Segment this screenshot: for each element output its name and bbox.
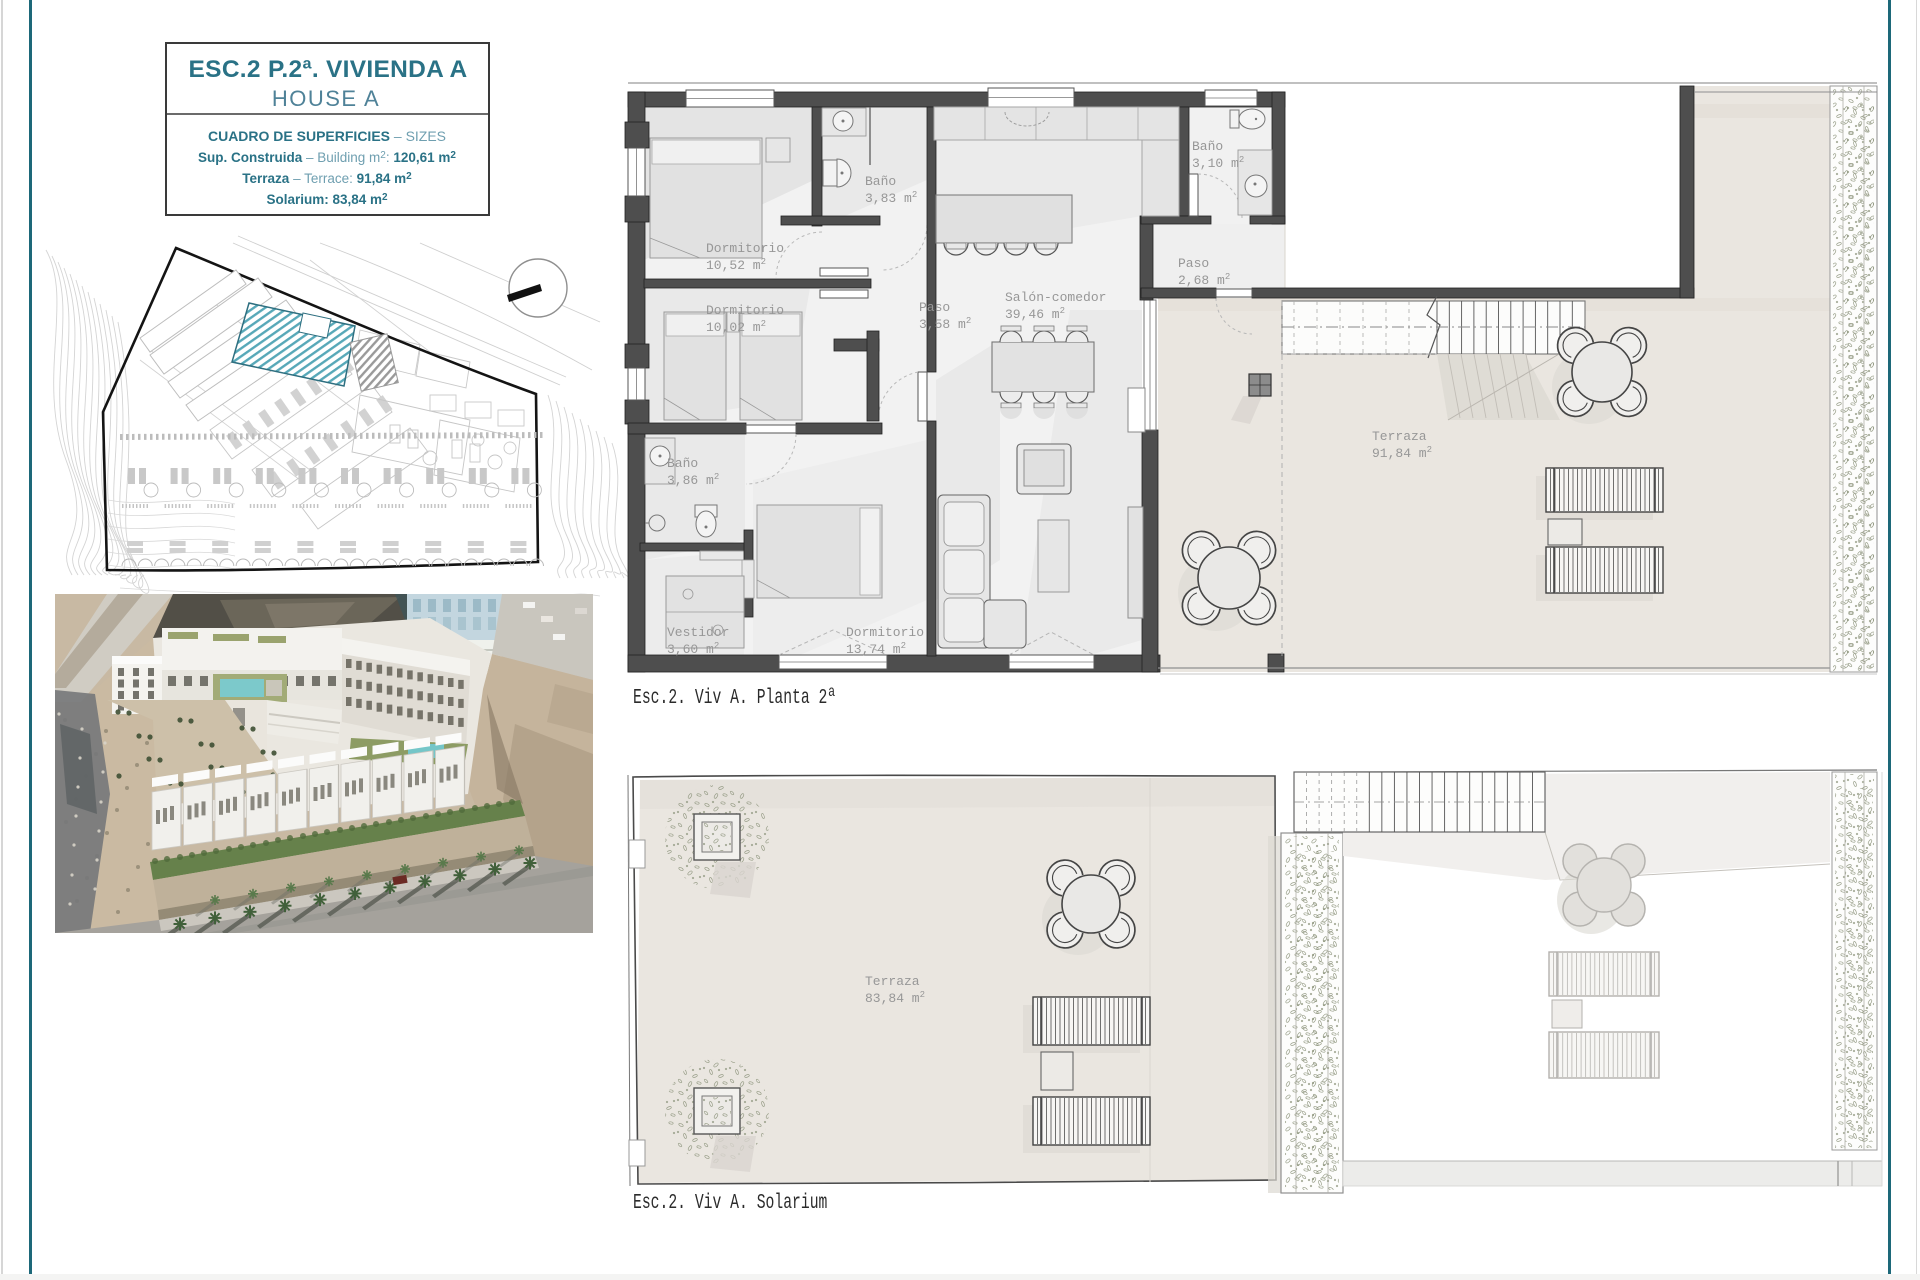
svg-text:10,52 m2: 10,52 m2 [706, 257, 766, 273]
svg-text:Paso: Paso [1178, 256, 1209, 271]
svg-text:Esc.2. Viv A. Solarium: Esc.2. Viv A. Solarium [633, 1191, 827, 1215]
svg-text:91,84 m2: 91,84 m2 [1372, 445, 1432, 461]
svg-text:13,74 m2: 13,74 m2 [846, 641, 906, 657]
svg-text:Paso: Paso [919, 300, 950, 315]
svg-text:39,46 m2: 39,46 m2 [1005, 306, 1065, 322]
svg-text:Terraza: Terraza [1372, 429, 1427, 444]
svg-text:Solarium: 83,84 m2: Solarium: 83,84 m2 [266, 192, 388, 207]
svg-text:ESC.2 P.2ª. VIVIENDA A: ESC.2 P.2ª. VIVIENDA A [189, 56, 468, 83]
svg-text:83,84 m2: 83,84 m2 [865, 990, 925, 1006]
svg-text:HOUSE A: HOUSE A [272, 86, 380, 111]
svg-text:3,83 m2: 3,83 m2 [865, 190, 917, 206]
svg-text:3,10 m2: 3,10 m2 [1192, 155, 1244, 171]
svg-text:Dormitorio: Dormitorio [706, 303, 784, 318]
svg-text:Dormitorio: Dormitorio [846, 625, 924, 640]
svg-text:Sup. Construida – Building m2:: Sup. Construida – Building m2: 120,61 m2 [198, 150, 456, 165]
svg-text:Terraza: Terraza [865, 974, 920, 989]
svg-text:10,02 m2: 10,02 m2 [706, 319, 766, 335]
svg-text:2,68 m2: 2,68 m2 [1178, 272, 1230, 288]
svg-text:Baño: Baño [865, 174, 896, 189]
svg-text:3,60 m2: 3,60 m2 [667, 641, 719, 657]
svg-text:Esc.2. Viv A. Planta 2ª: Esc.2. Viv A. Planta 2ª [633, 686, 836, 710]
svg-text:Baño: Baño [1192, 139, 1223, 154]
svg-text:Vestidor: Vestidor [667, 625, 729, 640]
svg-text:Terraza – Terrace: 91,84 m2: Terraza – Terrace: 91,84 m2 [242, 171, 412, 186]
svg-text:Dormitorio: Dormitorio [706, 241, 784, 256]
svg-text:3,58 m2: 3,58 m2 [919, 316, 971, 332]
svg-text:CUADRO DE SUPERFICIES – SIZES: CUADRO DE SUPERFICIES – SIZES [208, 128, 446, 144]
svg-text:Baño: Baño [667, 456, 698, 471]
svg-text:3,86 m2: 3,86 m2 [667, 472, 719, 488]
svg-text:Salón-comedor: Salón-comedor [1005, 290, 1106, 305]
